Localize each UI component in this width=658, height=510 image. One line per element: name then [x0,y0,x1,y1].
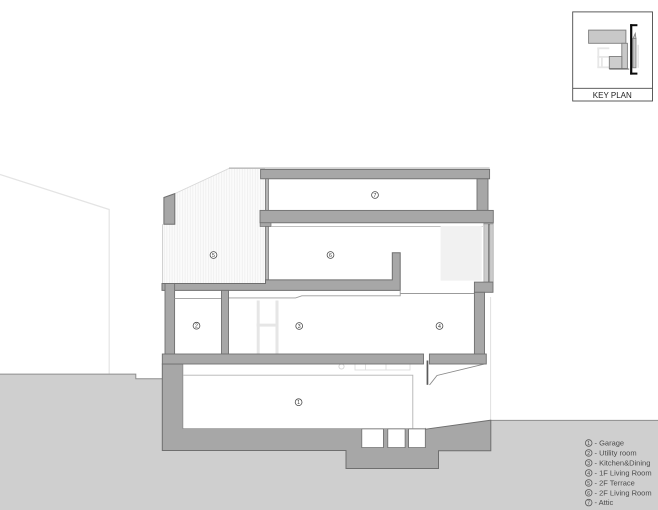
svg-text:1: 1 [587,441,590,447]
svg-text:3: 3 [298,324,301,330]
svg-text:1: 1 [297,400,300,406]
svg-text:6: 6 [587,491,590,497]
svg-text:5: 5 [212,253,215,259]
svg-text:2: 2 [587,451,590,457]
svg-text:7: 7 [587,501,590,507]
svg-text:- Attic: - Attic [595,498,614,507]
svg-text:- 2F Terrace: - 2F Terrace [595,479,635,488]
svg-text:4: 4 [438,324,441,330]
svg-text:4: 4 [587,471,590,477]
svg-text:7: 7 [374,193,377,199]
svg-text:- Kitchen&Dining: - Kitchen&Dining [595,459,651,468]
svg-text:- 1F Living Room: - 1F Living Room [595,469,652,478]
svg-text:- 2F Living Room: - 2F Living Room [595,488,652,497]
svg-text:- Garage: - Garage [595,439,625,448]
svg-text:KEY PLAN: KEY PLAN [593,91,632,100]
svg-text:6: 6 [329,253,332,259]
svg-text:- Utility room: - Utility room [595,449,637,458]
svg-text:2: 2 [195,324,198,330]
svg-text:3: 3 [587,461,590,467]
svg-text:5: 5 [587,481,590,487]
